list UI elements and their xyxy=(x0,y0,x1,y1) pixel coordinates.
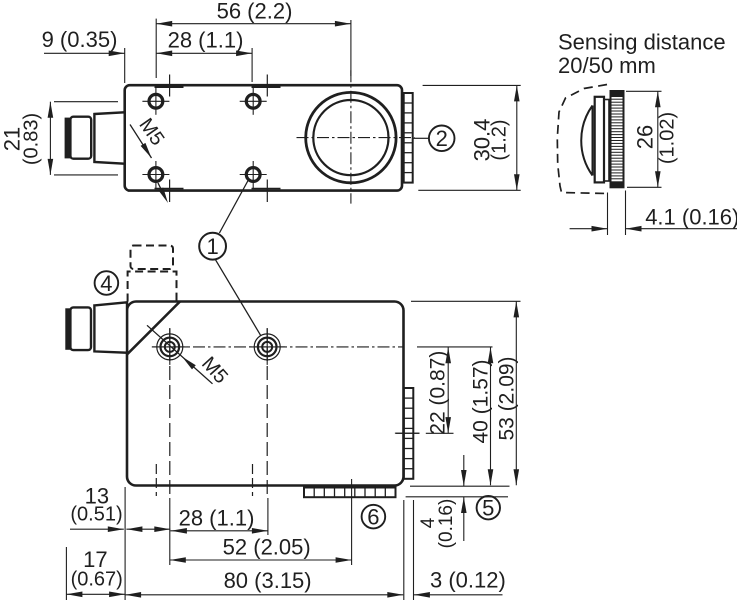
svg-text:(1.2): (1.2) xyxy=(489,119,511,160)
svg-text:52 (2.05): 52 (2.05) xyxy=(223,535,311,560)
svg-text:28 (1.1): 28 (1.1) xyxy=(179,505,255,530)
svg-text:53 (2.09): 53 (2.09) xyxy=(496,356,519,440)
svg-text:(0.51): (0.51) xyxy=(70,504,122,526)
svg-text:20/50 mm: 20/50 mm xyxy=(558,53,656,78)
svg-text:Sensing distance: Sensing distance xyxy=(558,30,726,55)
svg-text:4.1 (0.16): 4.1 (0.16) xyxy=(645,205,737,230)
svg-text:(0.83): (0.83) xyxy=(21,113,43,165)
svg-text:1: 1 xyxy=(206,234,218,259)
svg-text:(0.67): (0.67) xyxy=(71,569,123,591)
svg-text:(0.16): (0.16) xyxy=(436,499,457,549)
svg-text:4: 4 xyxy=(100,271,112,296)
svg-text:(1.02): (1.02) xyxy=(657,112,679,164)
svg-text:2: 2 xyxy=(436,126,448,151)
svg-text:6: 6 xyxy=(367,505,379,530)
svg-text:5: 5 xyxy=(482,496,494,521)
svg-text:3 (0.12): 3 (0.12) xyxy=(430,568,506,593)
svg-text:80 (3.15): 80 (3.15) xyxy=(224,568,312,593)
svg-text:40 (1.57): 40 (1.57) xyxy=(470,359,493,443)
svg-text:9 (0.35): 9 (0.35) xyxy=(42,27,118,52)
svg-text:56 (2.2): 56 (2.2) xyxy=(217,0,293,24)
svg-text:22 (0.87): 22 (0.87) xyxy=(427,351,450,435)
svg-text:28 (1.1): 28 (1.1) xyxy=(168,28,244,53)
svg-text:26: 26 xyxy=(633,125,658,149)
